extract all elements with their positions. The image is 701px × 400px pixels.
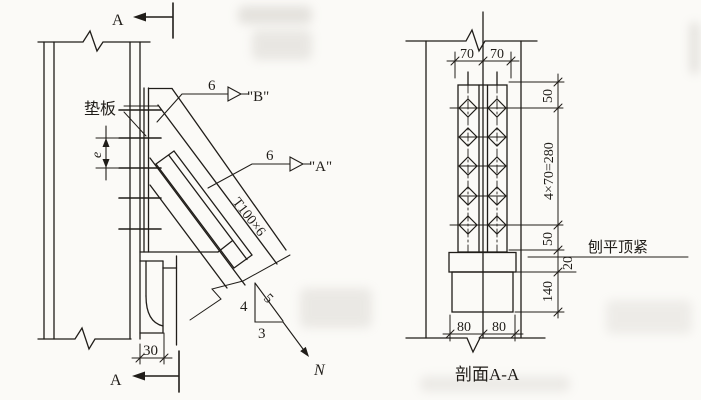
arrowhead [300,347,309,357]
dim-base-right-label: 80 [492,320,506,335]
dim-gauge-left-label: 70 [460,47,474,62]
section-arrow-label-bottom: A [110,372,122,389]
section-bottom-break-line [406,338,545,352]
force-arrow-label: N [313,362,326,379]
seat-bracket [140,256,177,345]
section-caption: 剖面A-A [455,365,520,384]
dim-pitch-label: 4×70=280 [542,142,557,200]
arrowhead [132,372,145,381]
weld-size-label-a: 6 [266,148,274,164]
dim-seat-label: 140 [541,281,556,302]
brace-member [150,105,290,320]
planed-tight-note: 刨平顶紧 [588,239,648,256]
dim-base-left-label: 80 [457,320,471,335]
weld-ref-label-b: "B" [247,89,269,105]
weld-size-label-b: 6 [208,78,216,94]
connection-detail-drawing: A A 垫板 e 30 6 "B" 6 "A" T100×6 4 5 3 N [0,0,701,400]
dim-edge-bottom-label: 50 [541,232,556,246]
dim-30-label: 30 [143,343,158,359]
section-arrow-label-top: A [112,12,124,29]
arrowhead [103,138,110,147]
bracket-fillet-curve [146,296,163,326]
weld-ref-label-a: "A" [309,159,332,175]
eccentricity-label: e [90,152,105,158]
section-column [406,12,545,352]
weld-symbol-triangle [228,87,241,101]
arrowhead [103,159,110,168]
pad-plate-label: 垫板 [84,100,116,118]
elevation-view [38,3,311,392]
slope-rise-label: 4 [240,299,248,315]
dim-gauge-right-label: 70 [490,47,504,62]
arrowhead [133,13,146,22]
slope-run-label: 3 [258,326,266,342]
weld-symbol-triangle [290,157,303,171]
gusset-diagonal-edge [172,89,286,251]
column-bottom-break-line [38,328,131,349]
force-arrow [283,322,309,357]
weld-callout-b [157,87,249,122]
brace-edge [158,105,277,264]
dim-edge-top-label: 50 [541,89,556,103]
scanned-engineering-figure: { "figure": { "type": "steel bracing con… [0,0,701,400]
column-top-break-line [38,31,150,51]
dim-plate-thk-label: 20 [561,256,576,270]
column-outline [38,31,150,349]
brace-edge [150,185,227,288]
brace-edge [150,158,245,285]
section-cut-top [133,3,173,38]
